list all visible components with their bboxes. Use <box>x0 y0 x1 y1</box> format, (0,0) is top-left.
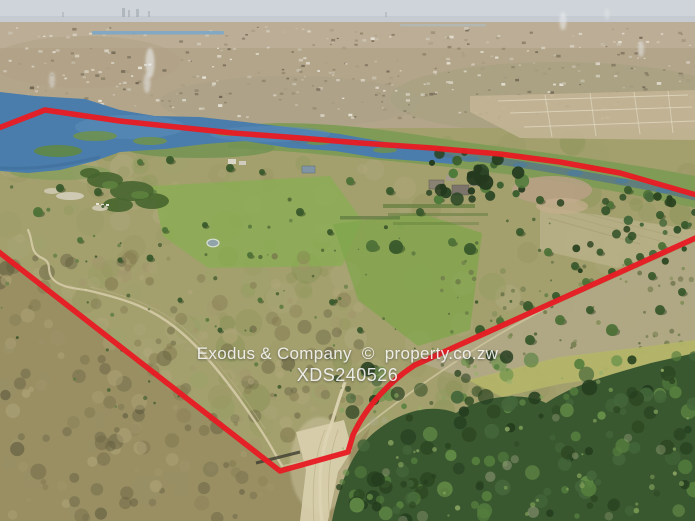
settlement-houses <box>530 32 533 34</box>
woodland-canopy <box>349 498 364 513</box>
scrub-mottle <box>221 343 234 356</box>
settlement-houses <box>435 68 437 70</box>
settlement-houses <box>256 53 259 55</box>
settlement-houses <box>75 55 79 58</box>
woodland-canopy <box>524 353 539 368</box>
canopy-highlight <box>455 505 460 510</box>
settlement-houses <box>73 34 77 37</box>
settlement-houses <box>162 69 166 72</box>
settlement-houses <box>465 111 467 112</box>
settlement-houses <box>342 98 344 99</box>
shrubs <box>290 370 292 372</box>
woodland-canopy <box>495 480 511 496</box>
woodland-canopy <box>402 445 412 455</box>
shrubs <box>117 244 121 248</box>
settlement-houses <box>362 39 366 41</box>
marsh-island <box>73 131 117 141</box>
settlement-houses <box>603 45 606 47</box>
scattered-trees <box>448 238 456 246</box>
scrub-mottle <box>26 498 31 503</box>
canopy-highlight <box>519 426 523 430</box>
canopy-highlight <box>561 377 563 379</box>
settlement-houses <box>233 48 236 50</box>
shrubs <box>432 348 434 350</box>
shrubs <box>1 307 3 309</box>
farm-trees <box>478 175 493 190</box>
canopy-highlight <box>679 481 684 486</box>
shrubs <box>382 317 385 320</box>
settlement-houses <box>355 40 358 42</box>
scrub-mottle <box>250 282 257 289</box>
woodland-canopy <box>431 474 436 479</box>
settlement-houses <box>686 79 690 81</box>
woodland-canopy <box>613 406 620 413</box>
scrub-mottle <box>91 298 102 309</box>
shrubs <box>143 396 147 400</box>
shrubs <box>334 250 336 252</box>
settlement-houses <box>329 72 332 74</box>
settlement-houses <box>634 68 636 69</box>
canopy-highlight <box>686 417 688 419</box>
scrub-shrubs <box>539 290 541 292</box>
scrub-shrubs <box>441 363 444 366</box>
settlement-houses <box>395 90 397 91</box>
scrub-shrubs <box>678 334 681 337</box>
settlement-houses <box>64 78 67 80</box>
woodland-canopy <box>546 509 554 517</box>
scattered-trees <box>166 156 174 164</box>
scrub-mottle <box>50 330 66 346</box>
scattered-trees <box>624 186 632 194</box>
scrub-mottle <box>10 442 24 456</box>
distant-skyline <box>62 12 64 17</box>
settlement-houses <box>306 62 310 64</box>
canopy-gap <box>369 417 378 426</box>
settlement-houses <box>426 38 430 40</box>
scrub-shrubs <box>559 339 561 341</box>
settlement-houses <box>446 81 450 83</box>
settlement-houses <box>237 115 240 117</box>
farm-trees <box>439 184 445 190</box>
grass-mottle <box>124 283 143 302</box>
shrubs <box>340 387 342 389</box>
shrubs <box>506 219 509 222</box>
woodland-canopy <box>571 431 581 441</box>
settlement-houses <box>195 93 199 95</box>
canopy-gap <box>511 455 519 463</box>
settlement-houses <box>126 70 130 73</box>
settlement-houses <box>519 76 521 77</box>
scrub-mottle <box>250 492 258 500</box>
canopy-highlight <box>673 471 677 475</box>
scrub-shrubs <box>670 277 674 281</box>
settlement-houses <box>247 83 250 85</box>
distant-water-strip <box>92 31 224 35</box>
scrub-mottle <box>348 310 356 318</box>
scrub-mottle <box>129 422 141 434</box>
woodland-canopy <box>343 469 350 476</box>
canopy-highlight <box>599 371 603 375</box>
farm-trees <box>434 195 443 204</box>
smoke-plume <box>560 12 567 30</box>
scattered-trees <box>118 258 123 263</box>
settlement-houses <box>37 86 39 87</box>
settlement-houses <box>296 28 298 29</box>
settlement-houses <box>580 80 584 83</box>
scrub-mottle <box>99 363 110 374</box>
settlement-houses <box>312 85 314 86</box>
shrubs <box>10 185 13 188</box>
settlement-houses <box>429 93 433 96</box>
settlement-houses <box>196 76 199 78</box>
settlement-houses <box>116 86 119 88</box>
woodland-canopy <box>336 484 342 490</box>
woodland-canopy <box>611 355 622 366</box>
settlement-houses <box>611 64 615 67</box>
scrub-shrubs <box>646 335 649 338</box>
woodland-canopy <box>334 375 341 382</box>
settlement-houses <box>282 72 286 74</box>
streamside-trees <box>601 206 610 215</box>
settlement-houses <box>596 75 600 78</box>
aerial-photo-canvas <box>0 0 695 521</box>
scattered-trees <box>536 196 544 204</box>
settlement-houses <box>216 80 218 82</box>
settlement-houses <box>630 86 634 88</box>
settlement-houses <box>218 104 222 107</box>
scattered-trees <box>33 207 43 217</box>
settlement-houses <box>224 44 227 46</box>
settlement-houses <box>113 94 115 95</box>
farm-trees <box>497 182 504 189</box>
streamside-trees <box>619 194 626 201</box>
settlement-houses <box>406 99 410 102</box>
settlement-houses <box>38 50 42 53</box>
farm-trees <box>426 190 432 196</box>
settlement-houses <box>51 60 54 62</box>
woodland-canopy <box>482 491 492 501</box>
settlement-houses <box>298 48 302 50</box>
scrub-shrubs <box>625 280 628 283</box>
streamside-trees <box>578 268 583 273</box>
settlement-houses <box>332 74 334 75</box>
shrubs <box>77 372 79 374</box>
scrub-mottle <box>332 327 342 337</box>
settlement-houses <box>91 69 94 71</box>
settlement-houses <box>464 27 468 30</box>
shrubs <box>365 274 367 276</box>
settlement-houses <box>615 72 619 74</box>
grass-mottle <box>479 273 507 301</box>
settlement-houses <box>325 62 327 63</box>
scrub-mottle <box>260 358 265 363</box>
settlement-houses <box>406 93 410 96</box>
scrub-mottle <box>189 365 195 371</box>
grass-mottle <box>218 312 228 322</box>
scrub-mottle <box>149 499 157 507</box>
settlement-houses <box>101 77 105 80</box>
settlement-houses <box>360 33 363 35</box>
grass-mottle <box>629 198 643 212</box>
scrub-mottle <box>203 462 218 477</box>
settlement-houses <box>301 65 304 67</box>
settlement-houses <box>421 93 425 96</box>
settlement-houses <box>372 77 376 80</box>
settlement-houses <box>89 33 92 35</box>
grass-mottle <box>76 207 104 235</box>
canopy-highlight <box>432 447 437 452</box>
settlement-houses <box>449 36 453 39</box>
shrubs <box>73 378 76 381</box>
scrub-mottle <box>117 277 122 282</box>
settlement-houses <box>448 72 450 73</box>
settlement-houses <box>279 99 281 100</box>
scattered-trees <box>259 169 265 175</box>
canopy-highlight <box>416 449 419 452</box>
scrub-mottle <box>280 427 296 443</box>
farm-trees <box>429 160 435 166</box>
settlement-houses <box>83 76 86 78</box>
scrub-mottle <box>275 325 291 341</box>
settlement-houses <box>266 30 270 32</box>
woodland-canopy <box>406 414 413 421</box>
settlement-houses <box>172 107 174 108</box>
settlement-houses <box>8 32 12 35</box>
woodland-canopy <box>608 498 620 510</box>
canopy-highlight <box>539 395 543 399</box>
settlement-houses <box>307 30 310 32</box>
settlement-houses <box>336 79 340 81</box>
scrub-shrubs <box>647 286 653 292</box>
woodland-canopy <box>501 397 516 412</box>
scrub-mottle <box>36 380 47 391</box>
scrub-mottle <box>80 355 90 365</box>
scrub-mottle <box>198 482 210 494</box>
settlement-houses <box>478 74 481 76</box>
grass-mottle <box>69 203 79 213</box>
shrubs <box>114 405 117 408</box>
farm-trees <box>449 169 458 178</box>
woodland-canopy <box>549 435 555 441</box>
settlement-houses <box>295 104 298 106</box>
scrub-mottle <box>134 339 141 346</box>
woodland-canopy <box>669 386 681 398</box>
shrubs <box>314 316 317 319</box>
canopy-highlight <box>593 419 597 423</box>
shrubs <box>153 402 156 405</box>
woodland-canopy <box>357 439 369 451</box>
woodland-canopy <box>570 387 579 396</box>
settlement-houses <box>342 47 346 50</box>
settlement-houses <box>43 36 45 37</box>
scrub-mottle <box>0 390 10 400</box>
scattered-trees <box>525 335 535 345</box>
scrub-mottle <box>310 374 319 383</box>
settlement-houses <box>612 29 614 30</box>
woodland-canopy <box>400 429 416 445</box>
bush-highlight <box>131 191 149 199</box>
settlement-houses <box>131 75 133 76</box>
woodland-canopy <box>346 393 356 403</box>
scrub-mottle <box>120 306 128 314</box>
settlement-houses <box>481 68 485 70</box>
scattered-trees <box>656 211 664 219</box>
farm-building <box>228 159 236 164</box>
settlement-houses <box>689 45 691 46</box>
settlement-houses <box>396 60 398 61</box>
settlement-houses <box>668 65 670 67</box>
woodland-canopy <box>367 494 373 500</box>
settlement-houses <box>541 47 545 49</box>
settlement-houses <box>663 69 666 71</box>
settlement-houses <box>553 84 556 86</box>
settlement-houses <box>320 114 324 117</box>
shrubs <box>509 300 512 303</box>
scattered-trees <box>56 184 64 192</box>
settlement-houses <box>332 42 334 43</box>
scattered-trees <box>162 227 168 233</box>
canopy-highlight <box>504 486 508 490</box>
shrubs <box>254 362 258 366</box>
settlement-houses <box>65 92 68 94</box>
settlement-houses <box>284 88 287 90</box>
scrub-mottle <box>87 457 97 467</box>
settlement-houses <box>681 39 685 42</box>
shrubs <box>95 255 98 258</box>
woodland-canopy <box>465 396 474 405</box>
shrubs <box>321 249 324 252</box>
settlement-houses <box>407 112 410 114</box>
settlement-houses <box>375 38 378 40</box>
settlement-houses <box>62 75 64 77</box>
scrub-shrubs <box>448 313 450 315</box>
scrub-mottle <box>175 313 187 325</box>
smoke-plume <box>605 8 610 20</box>
scattered-trees <box>571 262 579 270</box>
settlement-houses <box>435 92 438 94</box>
settlement-houses <box>71 61 75 63</box>
scattered-trees <box>357 327 363 333</box>
settlement-houses <box>408 104 410 105</box>
scrub-mottle <box>192 328 198 334</box>
scrub-shrubs <box>596 320 601 325</box>
shrubs <box>267 254 269 256</box>
distant-skyline <box>122 8 125 17</box>
canopy-gap <box>527 506 539 518</box>
smoke-plume <box>144 73 151 93</box>
settlement-houses <box>550 91 554 93</box>
scrub-mottle <box>188 290 193 295</box>
shrubs <box>327 356 330 359</box>
scrub-shrubs <box>543 310 547 314</box>
scrub-mottle <box>69 496 80 507</box>
property-aerial-photo: Exodus & Company © property.co.zw XDS240… <box>0 0 695 521</box>
settlement-houses <box>324 80 327 82</box>
scattered-trees <box>137 159 143 165</box>
marsh-peninsula <box>34 145 82 157</box>
scrub-mottle <box>62 427 71 436</box>
woodland-canopy <box>597 411 605 419</box>
settlement-houses <box>383 108 387 111</box>
streamside-trees <box>688 222 692 226</box>
woodland-canopy <box>454 416 467 429</box>
scrub-mottle <box>281 356 295 370</box>
shrubs <box>205 318 209 322</box>
woodland-canopy <box>339 479 345 485</box>
scrub-mottle <box>69 473 79 483</box>
settlement-houses <box>108 52 111 54</box>
woodland-canopy <box>454 370 461 377</box>
settlement-houses <box>548 68 551 70</box>
scrub-mottle <box>230 414 239 423</box>
distant-skyline <box>148 11 150 17</box>
scrub-mottle <box>92 256 106 270</box>
settlement-houses <box>242 38 245 40</box>
streamside-trees <box>602 198 609 205</box>
canopy-highlight <box>418 406 423 411</box>
scrub-mottle <box>316 329 331 344</box>
woodland-canopy <box>484 456 495 467</box>
settlement-houses <box>90 48 92 49</box>
scrub-mottle <box>44 319 53 328</box>
canopy-highlight <box>650 475 655 480</box>
settlement-houses <box>257 72 260 74</box>
settlement-houses <box>614 75 617 77</box>
canopy-highlight <box>654 410 658 414</box>
streamside-trees <box>612 230 621 239</box>
scrub-shrubs <box>669 329 674 334</box>
shrubs <box>288 197 292 201</box>
settlement-houses <box>381 101 383 102</box>
shrubs <box>107 388 111 392</box>
settlement-houses <box>337 38 339 39</box>
blue-roof-shed <box>302 166 315 173</box>
shrubs <box>538 249 541 252</box>
settlement-houses <box>201 108 204 110</box>
streamside-trees <box>664 198 672 206</box>
settlement-houses <box>223 64 226 66</box>
shrubs <box>85 260 87 262</box>
woodland-canopy <box>355 466 367 478</box>
woodland-canopy <box>514 441 519 446</box>
canopy-highlight <box>581 453 583 455</box>
scrub-mottle <box>176 408 191 423</box>
scrub-mottle <box>42 484 48 490</box>
settlement-houses <box>197 43 201 45</box>
canopy-highlight <box>536 499 539 502</box>
scrub-mottle <box>232 514 237 519</box>
settlement-houses <box>52 51 55 53</box>
scrub-mottle <box>8 510 18 520</box>
scrub-mottle <box>179 460 191 472</box>
settlement-houses <box>464 39 467 41</box>
settlement-houses <box>642 86 645 88</box>
settlement-houses <box>111 51 115 54</box>
scrub-mottle <box>147 263 158 274</box>
scattered-trees <box>389 240 403 254</box>
woodland-canopy <box>471 501 479 509</box>
canopy-highlight <box>581 481 583 483</box>
scrub-mottle <box>272 317 282 327</box>
settlement-houses <box>601 43 605 45</box>
settlement-houses <box>280 93 284 95</box>
shrubs <box>475 300 478 303</box>
grass-mottle <box>269 340 285 356</box>
settlement-houses <box>495 57 498 59</box>
canopy-gap <box>485 472 495 482</box>
grass-mottle <box>300 287 313 300</box>
woodland-canopy <box>462 427 477 442</box>
